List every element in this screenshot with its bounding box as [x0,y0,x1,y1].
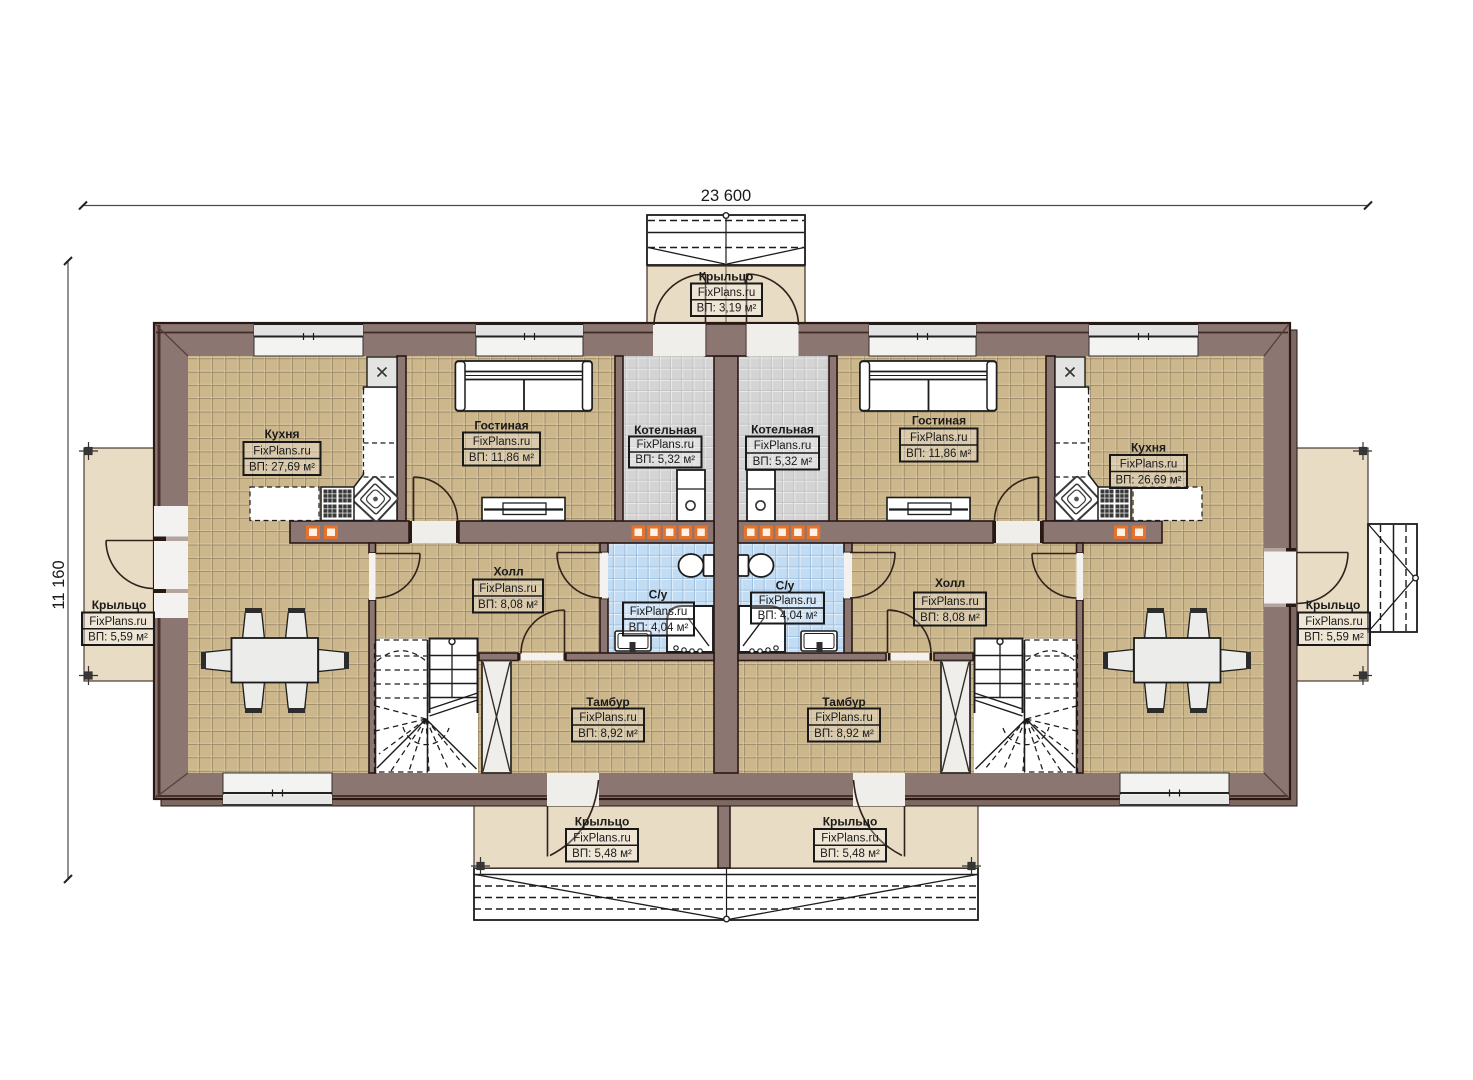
svg-text:FixPlans.ru: FixPlans.ru [754,440,812,452]
svg-text:Холл: Холл [935,576,965,590]
svg-text:Гостиная: Гостиная [474,419,528,433]
svg-text:FixPlans.ru: FixPlans.ru [89,616,147,628]
svg-text:Холл: Холл [493,565,523,579]
svg-text:FixPlans.ru: FixPlans.ru [921,596,979,608]
svg-text:Котельная: Котельная [751,423,814,437]
svg-text:11 160: 11 160 [50,560,68,609]
svg-text:FixPlans.ru: FixPlans.ru [1305,616,1363,628]
svg-text:ВП: 8,08 м²: ВП: 8,08 м² [478,599,538,611]
svg-text:FixPlans.ru: FixPlans.ru [698,287,756,299]
svg-text:FixPlans.ru: FixPlans.ru [636,439,694,451]
svg-text:Кухня: Кухня [264,427,299,441]
svg-text:ВП: 4,04 м²: ВП: 4,04 м² [629,622,689,634]
svg-text:С/у: С/у [649,588,668,602]
svg-text:FixPlans.ru: FixPlans.ru [253,446,311,458]
svg-text:Тамбур: Тамбур [586,695,630,709]
svg-text:FixPlans.ru: FixPlans.ru [815,712,873,724]
svg-text:FixPlans.ru: FixPlans.ru [759,595,817,607]
svg-text:ВП: 27,69 м²: ВП: 27,69 м² [249,462,315,474]
svg-text:ВП: 8,92 м²: ВП: 8,92 м² [814,728,874,740]
svg-text:FixPlans.ru: FixPlans.ru [910,432,968,444]
svg-text:Крыльцо: Крыльцо [699,270,754,284]
svg-text:Кухня: Кухня [1131,441,1166,455]
svg-text:Крыльцо: Крыльцо [92,598,147,612]
svg-text:FixPlans.ru: FixPlans.ru [473,436,531,448]
svg-text:ВП: 5,32 м²: ВП: 5,32 м² [635,454,695,466]
svg-text:ВП: 5,48 м²: ВП: 5,48 м² [572,848,632,860]
svg-text:FixPlans.ru: FixPlans.ru [573,832,631,844]
svg-text:ВП: 26,69 м²: ВП: 26,69 м² [1115,475,1181,487]
svg-text:FixPlans.ru: FixPlans.ru [579,712,637,724]
svg-text:Котельная: Котельная [634,423,697,437]
svg-text:FixPlans.ru: FixPlans.ru [479,583,537,595]
svg-text:FixPlans.ru: FixPlans.ru [630,606,688,618]
svg-text:ВП: 5,59 м²: ВП: 5,59 м² [1304,632,1364,644]
svg-text:ВП: 8,92 м²: ВП: 8,92 м² [578,728,638,740]
svg-text:Тамбур: Тамбур [822,695,866,709]
svg-text:ВП: 11,86 м²: ВП: 11,86 м² [906,448,971,460]
svg-text:FixPlans.ru: FixPlans.ru [1120,459,1178,471]
svg-text:ВП: 5,32 м²: ВП: 5,32 м² [753,456,813,468]
svg-text:ВП: 5,59 м²: ВП: 5,59 м² [88,632,148,644]
svg-text:ВП: 8,08 м²: ВП: 8,08 м² [920,612,980,624]
svg-text:Крыльцо: Крыльцо [823,815,878,829]
svg-text:ВП: 11,86 м²: ВП: 11,86 м² [469,452,534,464]
svg-text:Крыльцо: Крыльцо [1306,598,1361,612]
svg-text:Гостиная: Гостиная [912,414,966,428]
svg-text:FixPlans.ru: FixPlans.ru [821,832,879,844]
svg-text:ВП: 5,48 м²: ВП: 5,48 м² [820,848,880,860]
svg-text:Крыльцо: Крыльцо [575,815,630,829]
svg-text:ВП: 4,04 м²: ВП: 4,04 м² [758,610,818,622]
svg-text:С/у: С/у [776,579,795,593]
svg-text:23 600: 23 600 [701,187,751,205]
svg-text:ВП: 3,19 м²: ВП: 3,19 м² [697,303,757,315]
